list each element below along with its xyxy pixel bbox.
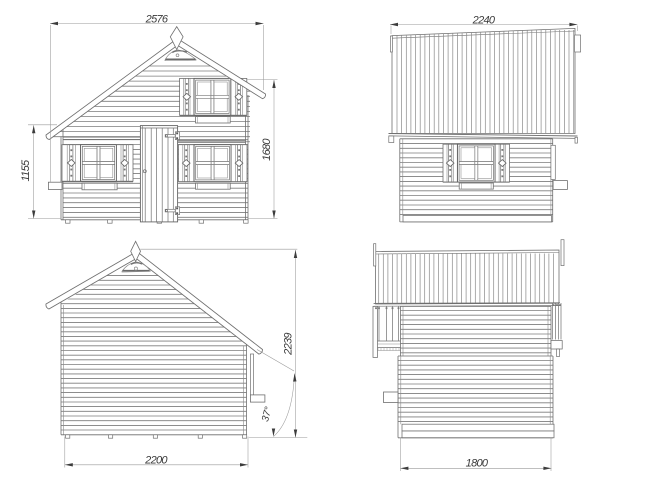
svg-text:2200: 2200 — [144, 454, 168, 466]
svg-text:1680: 1680 — [261, 138, 273, 161]
svg-text:2240: 2240 — [472, 14, 496, 26]
svg-text:2576: 2576 — [145, 13, 169, 25]
svg-text:1800: 1800 — [466, 458, 489, 470]
svg-text:1155: 1155 — [20, 159, 32, 181]
svg-text:2239: 2239 — [283, 333, 295, 356]
